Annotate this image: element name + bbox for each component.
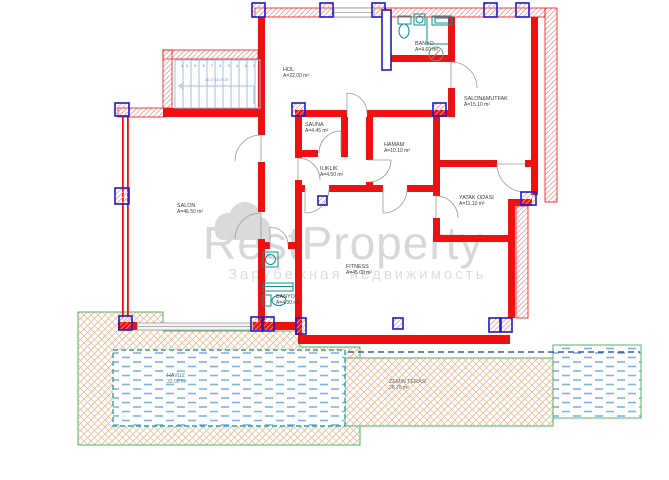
door-mutfak-yatak xyxy=(497,164,525,192)
terrace-area xyxy=(78,312,641,445)
toilet-bowl-icon xyxy=(399,24,409,38)
area-zemin-terasi: 36.70 m² xyxy=(389,385,409,391)
watermark-brand: RestProperty xyxy=(203,217,483,269)
room-area-banyo-ust: A=4.60 m² xyxy=(415,47,439,53)
exterior-band-stairs-left xyxy=(163,50,172,108)
room-area-sauna: A=4.45 m² xyxy=(305,128,329,134)
floor-plan-canvas: RestProperty Зарубежная недвижимость xyxy=(0,0,669,480)
stair-mid-numbers: 16 17 18 19 20 xyxy=(205,78,228,82)
door-banyo-ust xyxy=(451,62,477,88)
room-area-yatak: A=11.10 m² xyxy=(459,201,485,207)
area-havuz: 32.00 m² xyxy=(167,379,187,385)
room-area-salon-mutfak: A=15.10 m² xyxy=(464,102,490,108)
door-sauna xyxy=(319,131,341,153)
zemin-terasi-paving xyxy=(345,358,553,426)
door-yatak-odasi xyxy=(436,196,458,218)
exterior-band-yatak-right xyxy=(516,206,528,318)
door-corridor-b xyxy=(383,189,407,213)
door-iliklik xyxy=(298,158,320,180)
door-hamam xyxy=(369,160,391,182)
shower-partition xyxy=(427,17,448,44)
room-area-iliklik: A=4.50 m² xyxy=(320,172,344,178)
room-area-banyo-alt: A=4.30 m² xyxy=(276,300,300,306)
room-area-salon: A=46.50 m² xyxy=(177,209,203,215)
room-area-fitness: A=45.00 m² xyxy=(346,270,372,276)
door-hol-sauna-wall xyxy=(347,93,367,113)
exterior-band-stairs-top xyxy=(163,50,258,59)
right-water-hatch xyxy=(553,345,641,418)
door-salon-upper xyxy=(235,135,261,161)
watermark: RestProperty Зарубежная недвижимость xyxy=(203,202,486,283)
exterior-band-right xyxy=(545,8,557,202)
stair-step-numbers: 10 9 8 7 6 5 4 3 2 xyxy=(181,63,256,68)
room-area-hol: A=22.00 m² xyxy=(283,73,309,79)
banyo-ust-fixtures xyxy=(398,14,452,61)
floor-plan-drawing: RestProperty Зарубежная недвижимость xyxy=(0,0,669,480)
pool-water xyxy=(113,350,345,426)
room-area-hamam: A=10.10 m² xyxy=(384,148,410,154)
